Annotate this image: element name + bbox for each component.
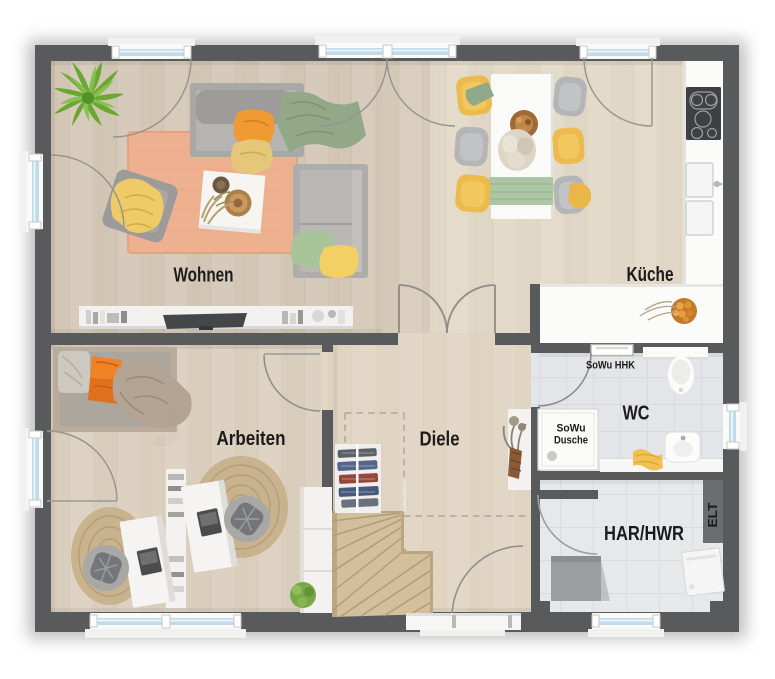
svg-text:Arbeiten: Arbeiten xyxy=(217,427,286,450)
svg-text:Wohnen: Wohnen xyxy=(174,264,234,287)
svg-text:Dusche: Dusche xyxy=(554,435,588,447)
svg-text:Diele: Diele xyxy=(420,428,460,451)
svg-text:WC: WC xyxy=(623,402,650,425)
svg-text:Küche: Küche xyxy=(627,263,674,286)
svg-text:SoWu HHK: SoWu HHK xyxy=(586,360,635,372)
svg-text:ELT: ELT xyxy=(706,502,720,527)
svg-text:HAR/HWR: HAR/HWR xyxy=(604,523,684,545)
svg-text:SoWu: SoWu xyxy=(557,423,586,435)
